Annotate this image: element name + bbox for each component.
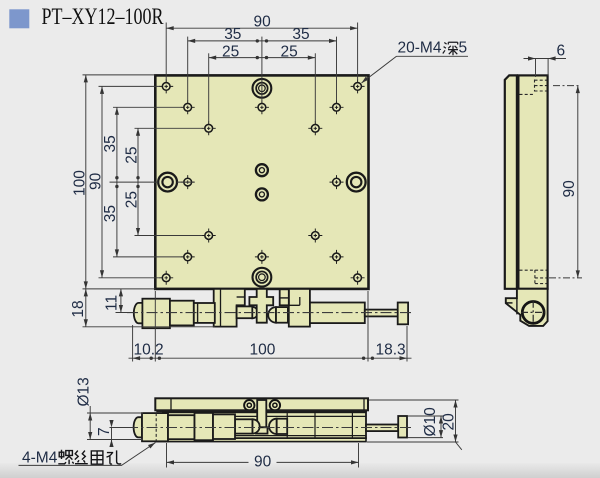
svg-text:Ø10: Ø10 [422, 407, 439, 437]
svg-text:100: 100 [72, 170, 89, 196]
svg-text:7: 7 [96, 427, 113, 436]
svg-text:35: 35 [292, 26, 309, 43]
svg-text:35: 35 [102, 205, 119, 222]
svg-text:25: 25 [281, 44, 298, 61]
svg-text:20-M4: 20-M4 [398, 40, 442, 57]
svg-text:18: 18 [70, 300, 87, 317]
svg-text:11: 11 [103, 295, 120, 311]
svg-text:90: 90 [254, 453, 272, 470]
svg-text:90: 90 [88, 172, 105, 190]
svg-text:PT–XY12–100R: PT–XY12–100R [42, 4, 165, 29]
svg-text:Ø13: Ø13 [75, 377, 92, 406]
svg-text:35: 35 [224, 26, 241, 43]
svg-text:4-M4: 4-M4 [22, 450, 58, 467]
svg-text:20: 20 [441, 413, 458, 431]
svg-text:90: 90 [561, 180, 578, 198]
svg-text:35: 35 [102, 135, 119, 152]
svg-text:18.3: 18.3 [376, 341, 406, 358]
svg-text:10.2: 10.2 [134, 341, 164, 358]
svg-text:25: 25 [222, 44, 239, 61]
svg-text:25: 25 [123, 146, 140, 163]
svg-text:25: 25 [123, 191, 140, 208]
svg-text:90: 90 [254, 14, 272, 31]
svg-text:6: 6 [557, 43, 566, 60]
svg-text:5: 5 [459, 40, 468, 57]
svg-text:100: 100 [250, 341, 276, 358]
